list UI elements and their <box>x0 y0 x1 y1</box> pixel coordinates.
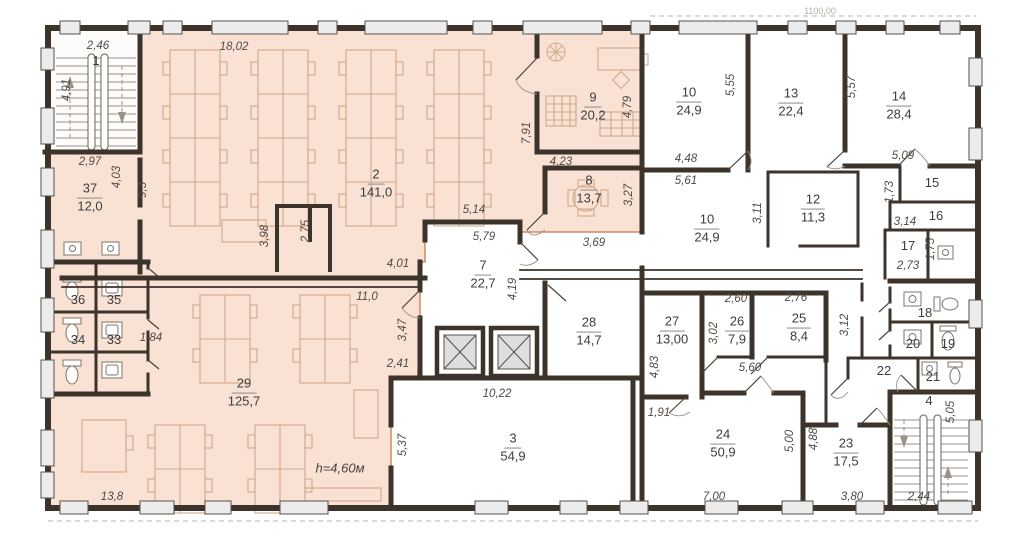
dimension-label: 5,05 <box>945 401 957 423</box>
dimension-label: 4,48 <box>675 153 697 165</box>
ceiling-height-label: h=4,60м <box>315 461 364 476</box>
room-label: 2713,00 <box>656 315 689 348</box>
dimension-label: 3,11 <box>752 202 764 224</box>
dimension-label: 3,98 <box>259 225 271 247</box>
room-label: 2814,7 <box>576 316 601 349</box>
room-label: 21 <box>921 370 945 386</box>
dimension-label: 5,37 <box>397 434 409 456</box>
floor-plan-drawing <box>0 0 1024 550</box>
dimension-label: 4,83 <box>649 356 661 378</box>
dimension-label: 1,73 <box>884 181 896 203</box>
room-label: 22 <box>872 364 896 380</box>
dimension-label: 10,22 <box>483 388 512 400</box>
room-label: 35 <box>102 293 126 309</box>
dimension-label: 9,3 <box>137 182 149 198</box>
dimension-label: 7,00 <box>703 491 725 503</box>
dimension-label: 2,97 <box>79 156 101 168</box>
room-label: 2450,9 <box>710 428 735 461</box>
room-label: 15 <box>920 176 944 192</box>
dimension-label: 7,91 <box>521 122 533 144</box>
dimension-label: 5,00 <box>784 430 796 452</box>
room-label: 19 <box>936 337 960 353</box>
dimension-label: 2,46 <box>87 40 109 52</box>
room-label: 813,7 <box>576 174 601 207</box>
room-label: 4 <box>920 394 937 410</box>
dimension-label: 1,84 <box>140 332 162 344</box>
room-label: 3712,0 <box>77 182 102 215</box>
room-label: 16 <box>924 209 948 225</box>
dimension-label: 13,8 <box>101 491 123 503</box>
room-label: 354,9 <box>500 432 525 465</box>
room-label: 36 <box>66 293 90 309</box>
dimension-label: 5,57 <box>846 76 858 98</box>
room-label: 1211,3 <box>801 193 825 226</box>
room-label: 2317,5 <box>833 437 858 470</box>
dimension-label: 4,01 <box>387 258 409 270</box>
dimension-label: 3,69 <box>583 237 605 249</box>
room-label: 1024,9 <box>694 213 719 246</box>
dimension-label: 5,55 <box>725 74 737 96</box>
dimension-label: 2,75 <box>300 220 312 242</box>
dimension-label: 2,73 <box>897 260 919 272</box>
dimension-label: 3,27 <box>623 184 635 206</box>
dimension-label: 4,79 <box>622 96 634 118</box>
dimension-label: 4,91 <box>61 79 73 101</box>
room-label: 258,4 <box>787 312 811 345</box>
plant-icon <box>547 43 565 61</box>
floor-plan: 1100,00 h=4,60м 12141,0354,94722,7813,79… <box>0 0 1024 550</box>
room-label: 34 <box>66 333 90 349</box>
room-label: 20 <box>901 337 925 353</box>
dimension-label: 5,14 <box>463 204 485 216</box>
dimension-label: 5,60 <box>739 362 761 374</box>
room-label: 1322,4 <box>778 87 803 120</box>
room-label: 1 <box>87 54 104 70</box>
dimension-label: 3,47 <box>397 319 409 341</box>
dimension-label: 4,03 <box>111 166 123 188</box>
dimension-label: 3,02 <box>708 322 720 344</box>
overall-dimension-label: 1100,00 <box>804 6 836 16</box>
room-label: 267,9 <box>725 315 749 348</box>
dimension-label: 2,76 <box>785 292 807 304</box>
dimension-label: 5,61 <box>675 175 697 187</box>
room-label: 920,2 <box>580 91 605 124</box>
dimension-label: 4,19 <box>507 278 519 300</box>
dimension-label: 2,44 <box>908 491 930 503</box>
dimension-label: 11,0 <box>356 291 378 303</box>
highlight-area <box>48 28 642 508</box>
room-label: 1024,9 <box>676 86 701 119</box>
room-label: 17 <box>896 239 920 255</box>
dimension-label: 5,79 <box>473 231 495 243</box>
dimension-label: 5,09 <box>892 150 914 162</box>
room-label: 33 <box>102 333 126 349</box>
room-label: 722,7 <box>470 259 495 292</box>
room-label: 18 <box>913 306 937 322</box>
dimension-label: 1,75 <box>925 238 937 260</box>
dimension-label: 3,14 <box>894 216 916 228</box>
dimension-label: 4,23 <box>550 156 572 168</box>
dimension-label: 2,60 <box>725 293 747 305</box>
dimension-label: 2,41 <box>387 358 409 370</box>
room-label: 29125,7 <box>228 377 261 410</box>
dimension-label: 1,91 <box>648 407 670 419</box>
dimension-label: 3,12 <box>839 314 851 336</box>
room-label: 2141,0 <box>360 168 393 201</box>
room-label: 1428,4 <box>886 90 911 123</box>
elevator-icon <box>437 328 537 376</box>
dimension-label: 18,02 <box>220 41 249 53</box>
dimension-label: 4,88 <box>808 428 820 450</box>
dimension-label: 3,80 <box>841 491 863 503</box>
